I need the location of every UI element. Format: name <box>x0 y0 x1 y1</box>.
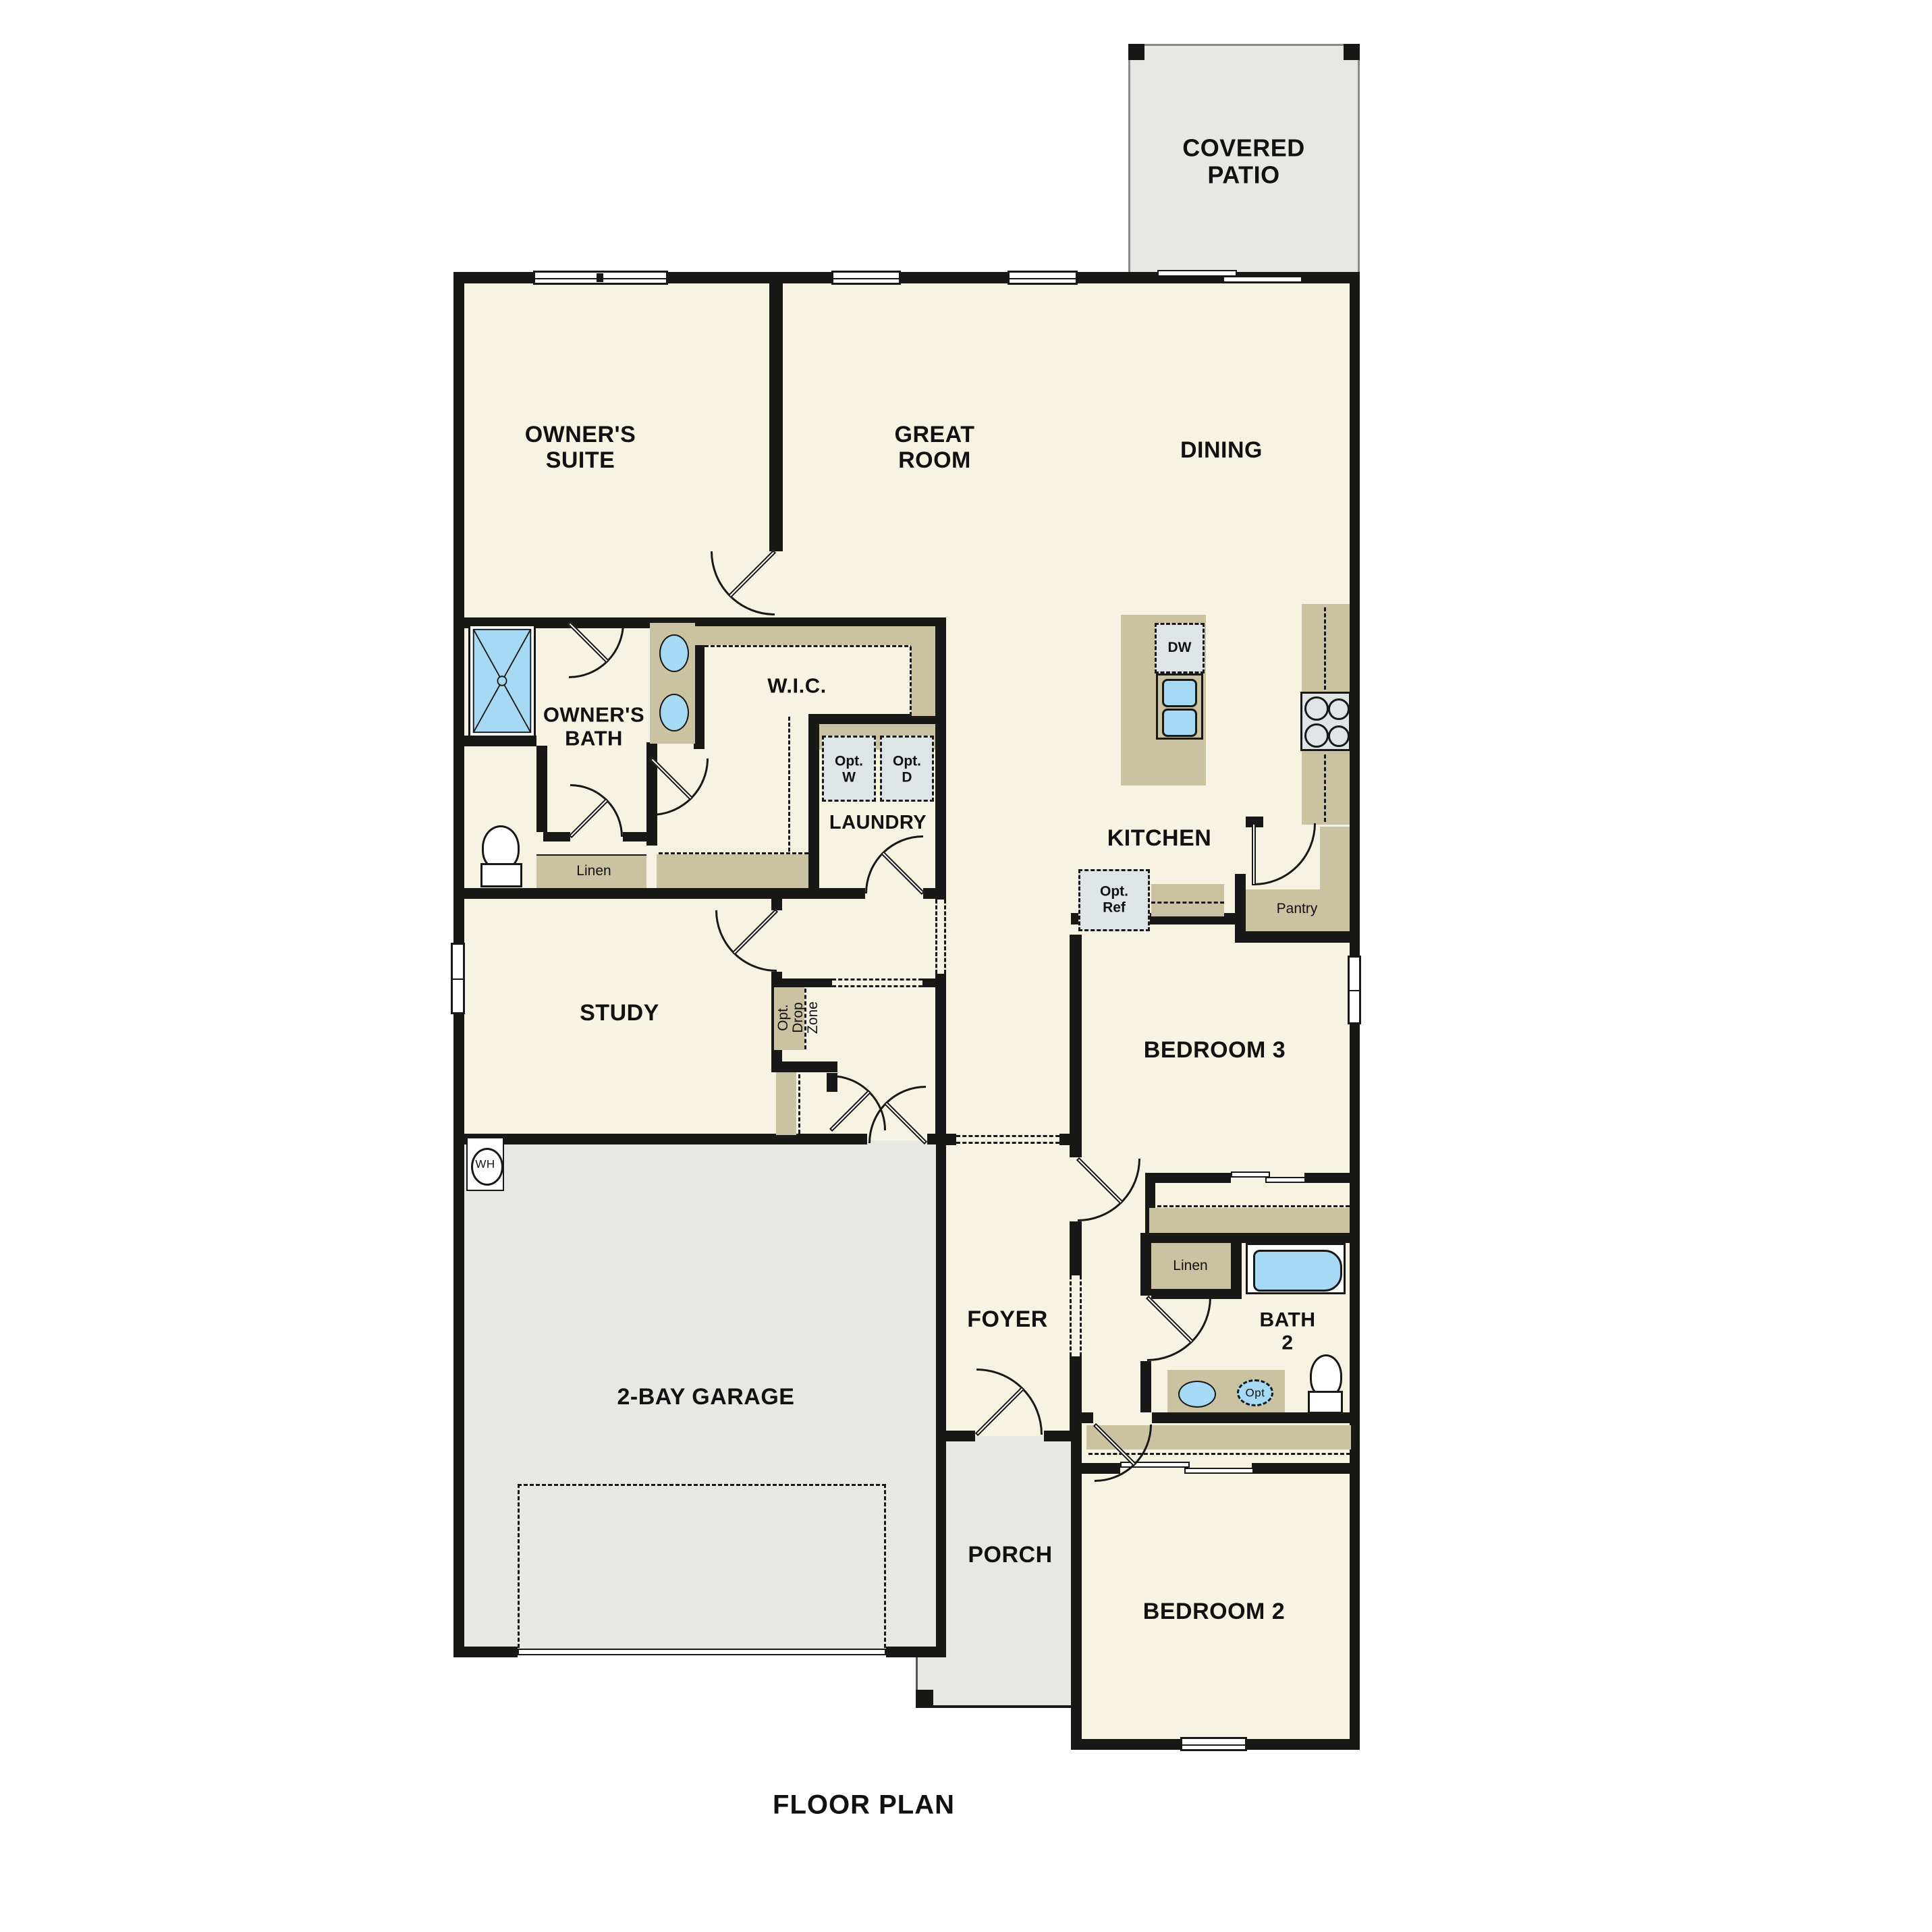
wall <box>1145 1173 1231 1183</box>
cased-opening <box>935 900 946 974</box>
cased-opening <box>956 1135 1059 1144</box>
wic-shelf-edge <box>788 717 790 852</box>
counter-centerline <box>1324 754 1326 822</box>
wall <box>935 974 946 1134</box>
floor-plan-canvas: COVERED PATIO OWNER'S SUITE GREAT ROOM D… <box>0 0 1932 1932</box>
vanity-sink <box>659 694 689 732</box>
room-label-owners-suite: OWNER'S SUITE <box>525 422 636 473</box>
kitchen-counter <box>1151 884 1224 916</box>
door-leaf <box>1252 823 1256 885</box>
room-label-laundry: LAUNDRY <box>829 812 927 833</box>
window <box>1348 956 1361 1024</box>
wall <box>623 832 650 841</box>
room-label-bedroom2: BEDROOM 2 <box>1143 1599 1285 1624</box>
toilet <box>480 825 520 885</box>
window <box>451 943 465 1014</box>
cased-opening <box>1070 1275 1082 1356</box>
wall <box>453 272 464 943</box>
room-label-dining: DINING <box>1180 437 1263 463</box>
bedroom3-closet-shelf <box>1149 1208 1350 1233</box>
wall <box>453 1134 867 1144</box>
pantry-shelf <box>1320 827 1350 891</box>
window <box>831 271 901 285</box>
wall <box>1235 874 1246 943</box>
label-opt-w: Opt. W <box>835 753 863 785</box>
burner <box>1328 725 1350 747</box>
garage-door <box>518 1649 886 1655</box>
bypass-door <box>1265 1177 1306 1183</box>
closet-rod <box>798 1074 800 1134</box>
wic-shelf-edge <box>910 646 912 716</box>
wall <box>936 1144 946 1647</box>
wall <box>1070 1221 1082 1275</box>
wall <box>886 1647 946 1657</box>
room-label-covered-patio: COVERED PATIO <box>1182 135 1305 190</box>
room-label-porch: PORCH <box>968 1542 1052 1568</box>
wall <box>1231 1243 1242 1289</box>
vanity-sink <box>659 634 689 672</box>
label-linen-hall: Linen <box>1173 1258 1207 1274</box>
wall <box>1071 1739 1180 1750</box>
burner <box>1304 696 1329 721</box>
room-label-garage: 2-BAY GARAGE <box>617 1384 795 1410</box>
wic-shelf-edge <box>659 852 808 854</box>
burner <box>1304 723 1329 748</box>
coat-closet-shelf <box>776 1072 796 1135</box>
room-label-owners-bath: OWNER'S BATH <box>543 703 644 750</box>
patio-sliding-door <box>1223 276 1302 283</box>
label-opt-ref: Opt. Ref <box>1100 883 1128 915</box>
kitchen-sink <box>1162 679 1197 707</box>
room-label-bath2: BATH 2 <box>1259 1308 1315 1354</box>
window <box>1180 1737 1247 1751</box>
wall <box>936 1431 975 1441</box>
label-wh: WH <box>475 1157 495 1170</box>
wall <box>1078 1412 1093 1423</box>
patio-post <box>1128 44 1144 60</box>
wic-shelf <box>657 854 808 888</box>
wall <box>771 899 782 910</box>
room-label-foyer: FOYER <box>967 1306 1048 1332</box>
plan-title: FLOOR PLAN <box>773 1790 955 1821</box>
label-dw: DW <box>1168 640 1192 656</box>
counter-centerline <box>1324 607 1326 690</box>
porch-floor <box>942 1436 1074 1707</box>
wic-shelf <box>911 644 935 716</box>
wall <box>1235 931 1360 943</box>
wall <box>1350 1024 1360 1750</box>
cased-opening <box>832 978 922 987</box>
bypass-door <box>1231 1171 1270 1178</box>
label-pantry: Pantry <box>1277 901 1318 917</box>
wall <box>1070 935 1082 1157</box>
wall <box>1247 1739 1360 1750</box>
label-linen-owner: Linen <box>576 863 611 879</box>
wall <box>808 714 819 899</box>
closet-rod <box>1151 1205 1350 1207</box>
wall <box>453 1014 464 1657</box>
wall <box>1140 1361 1151 1412</box>
wic-shelf-edge <box>705 645 920 647</box>
wall <box>1252 1463 1360 1474</box>
room-label-kitchen: KITCHEN <box>1107 825 1212 851</box>
kitchen-sink <box>1162 709 1197 737</box>
wall <box>1140 1233 1151 1296</box>
room-label-great-room: GREAT ROOM <box>895 422 975 473</box>
porch-step-block <box>916 1690 933 1707</box>
wall <box>1152 1412 1360 1423</box>
shower <box>468 624 536 738</box>
wall <box>536 746 547 832</box>
room-label-study: STUDY <box>580 1000 659 1026</box>
window <box>1008 271 1078 285</box>
counter-edge <box>1151 902 1224 904</box>
porch-edge <box>916 1705 1076 1708</box>
bypass-door <box>1184 1468 1254 1474</box>
wall <box>771 1061 837 1072</box>
wall <box>927 1134 946 1144</box>
garage-door-outline <box>518 1484 886 1648</box>
label-drop-zone: Opt. Drop Zone <box>776 1001 821 1034</box>
wall <box>1140 1233 1351 1243</box>
bathtub <box>1246 1243 1346 1294</box>
label-opt-d: Opt. D <box>893 753 921 785</box>
wall <box>1350 272 1360 956</box>
wall <box>1304 1173 1351 1183</box>
wic-shelf <box>695 626 935 645</box>
bath2-sink <box>1178 1381 1216 1408</box>
room-label-bedroom3: BEDROOM 3 <box>1144 1037 1286 1063</box>
shower-glass <box>470 626 534 736</box>
label-opt-sink: Opt <box>1246 1386 1265 1399</box>
wall <box>946 1134 956 1145</box>
wall <box>453 888 865 899</box>
burner <box>1328 698 1350 720</box>
room-label-wic: W.I.C. <box>767 675 826 698</box>
toilet <box>1308 1354 1342 1411</box>
wall <box>769 283 783 551</box>
wall <box>1071 1431 1082 1750</box>
wall <box>935 628 946 900</box>
wall <box>453 1647 518 1657</box>
window-mullion <box>597 273 603 282</box>
patio-post <box>1344 44 1360 60</box>
wall <box>543 832 570 841</box>
